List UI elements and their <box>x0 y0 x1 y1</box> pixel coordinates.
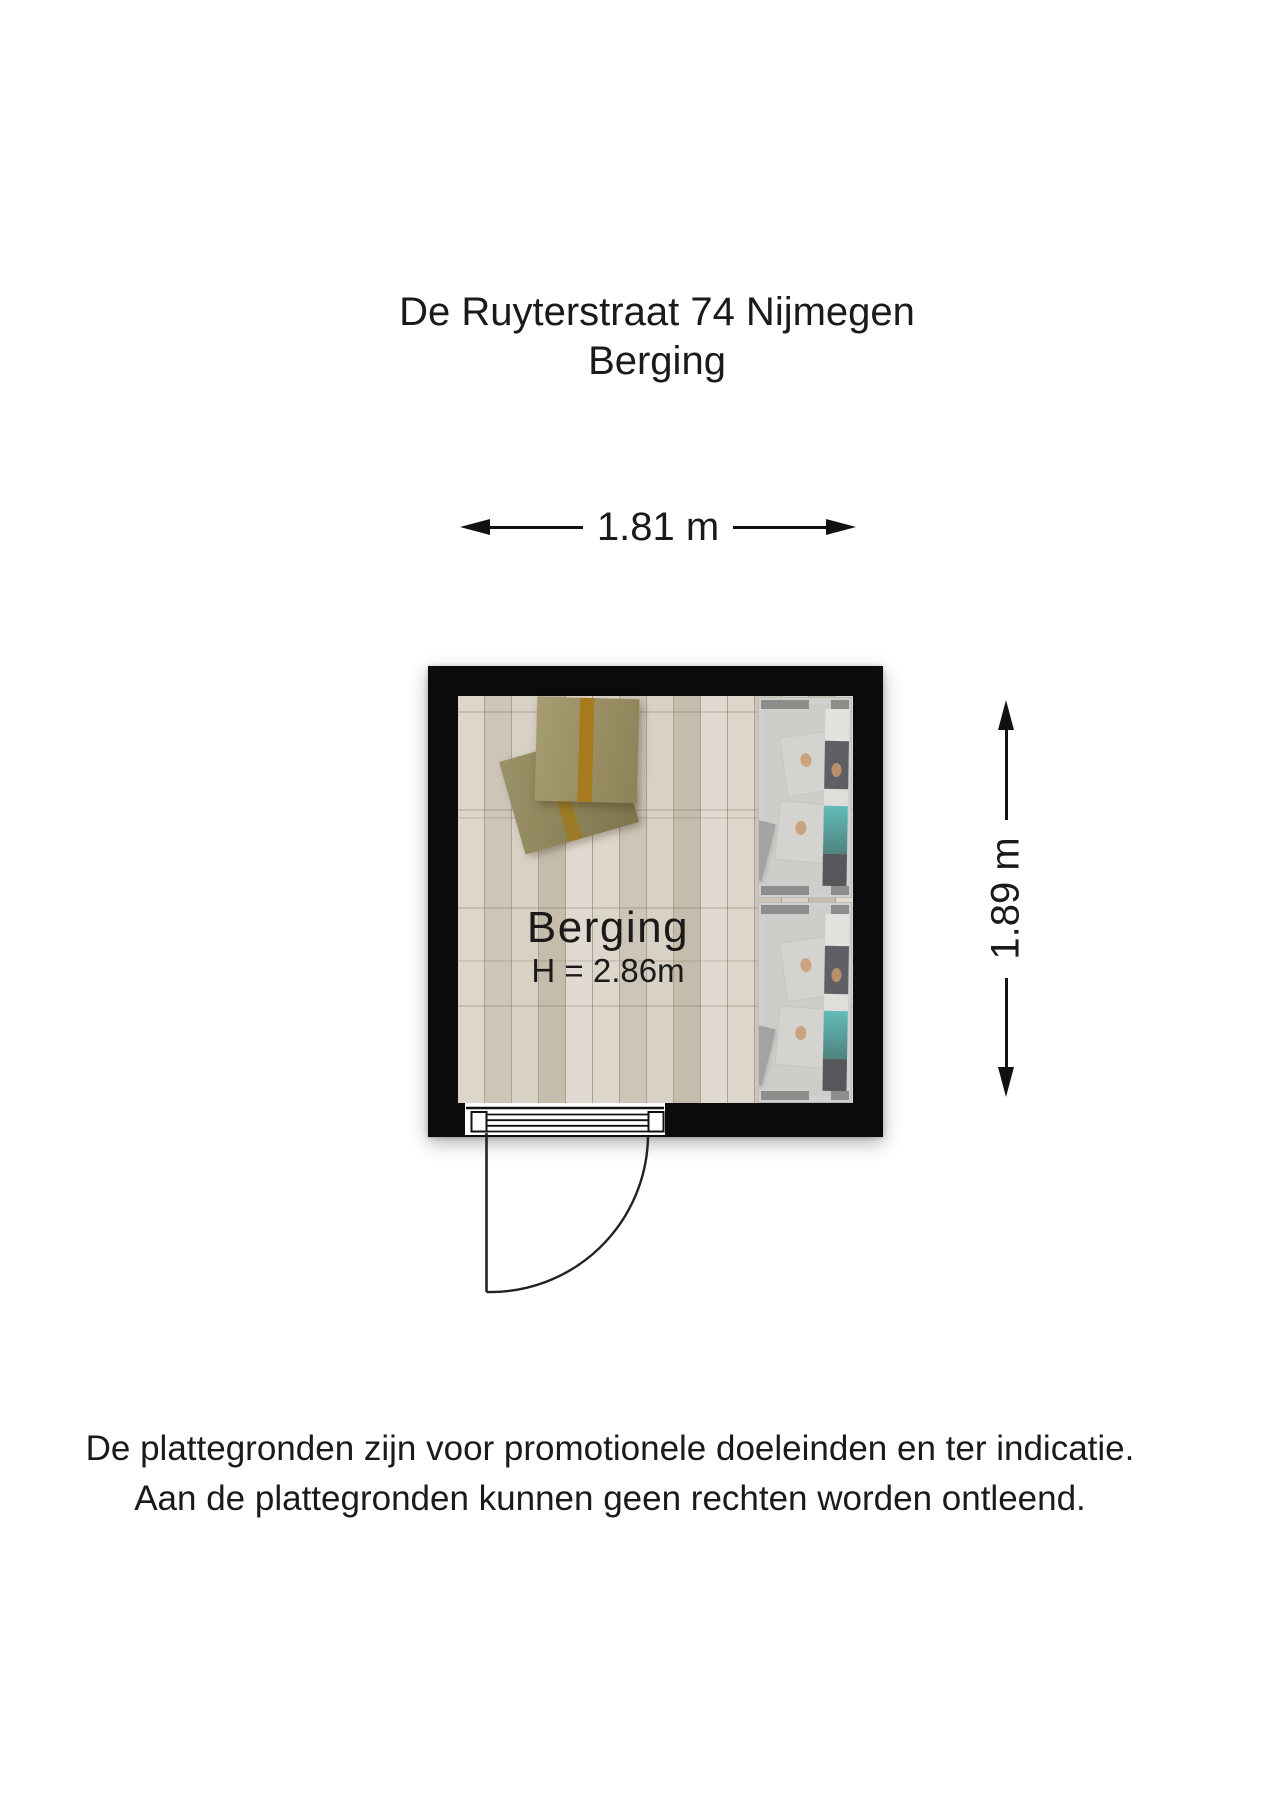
door-assembly <box>450 1095 690 1310</box>
cardboard-box-top <box>535 697 640 804</box>
dimension-arrowhead-left-icon <box>460 519 490 535</box>
dimension-line <box>1005 730 1008 820</box>
disclaimer: De plattegronden zijn voor promotionele … <box>10 1424 1210 1524</box>
floorplan-page: De Ruyterstraat 74 Nijmegen Berging 1.81… <box>0 0 1280 1810</box>
disclaimer-line-2: Aan de plattegronden kunnen geen rechten… <box>10 1474 1210 1524</box>
dimension-arrowhead-right-icon <box>826 519 856 535</box>
shelving-unit <box>758 697 852 1103</box>
room-label: Berging H = 2.86m <box>458 905 758 991</box>
shelf-section-bottom <box>758 902 852 1103</box>
height-dimension-label-wrap: 1.89 m <box>988 820 1024 978</box>
dimension-line <box>490 526 583 529</box>
height-dimension: 1.89 m <box>988 700 1024 1097</box>
shelf-overlay <box>759 698 851 897</box>
door-jamb-left <box>472 1112 487 1132</box>
height-dimension-label: 1.89 m <box>984 837 1029 959</box>
dimension-line <box>1005 978 1008 1068</box>
dimension-line <box>733 526 826 529</box>
address-title: De Ruyterstraat 74 Nijmegen <box>37 288 1277 337</box>
shelf-section-top <box>758 697 852 898</box>
door-swing-arc <box>487 1136 649 1292</box>
floor-title: Berging <box>37 337 1277 386</box>
door-jamb-right <box>649 1112 664 1132</box>
page-title: De Ruyterstraat 74 Nijmegen Berging <box>37 288 1277 386</box>
shelf-overlay <box>759 903 851 1102</box>
width-dimension: 1.81 m <box>460 507 856 547</box>
disclaimer-line-1: De plattegronden zijn voor promotionele … <box>10 1424 1210 1474</box>
dimension-arrowhead-up-icon <box>998 700 1014 730</box>
width-dimension-label: 1.81 m <box>583 505 733 550</box>
room-name: Berging <box>458 905 758 951</box>
room-ceiling-height: H = 2.86m <box>458 951 758 991</box>
dimension-arrowhead-down-icon <box>998 1067 1014 1097</box>
